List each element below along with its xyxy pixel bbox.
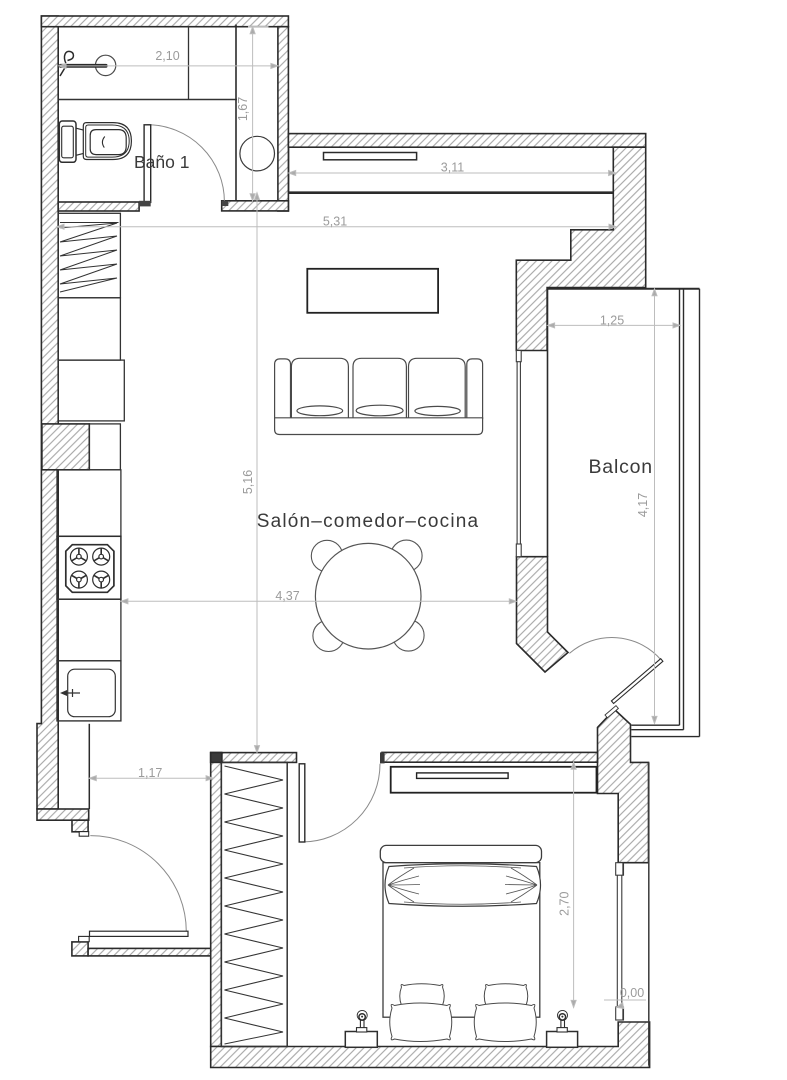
svg-text:Baño 1: Baño 1 [134, 152, 189, 172]
svg-text:1,25: 1,25 [600, 314, 624, 328]
svg-text:3,11: 3,11 [441, 161, 464, 175]
svg-text:2,70: 2,70 [558, 891, 572, 915]
svg-text:5,16: 5,16 [241, 470, 255, 494]
svg-text:2,10: 2,10 [155, 49, 179, 63]
svg-text:4,17: 4,17 [636, 493, 650, 517]
svg-text:5,31: 5,31 [323, 215, 347, 229]
svg-text:4,37: 4,37 [275, 589, 299, 603]
svg-text:0,00: 0,00 [620, 986, 644, 1000]
svg-text:Balcon: Balcon [589, 456, 653, 478]
svg-text:1,17: 1,17 [138, 766, 162, 780]
svg-text:Salón–comedor–cocina: Salón–comedor–cocina [257, 511, 480, 532]
svg-text:1,67: 1,67 [236, 97, 250, 121]
